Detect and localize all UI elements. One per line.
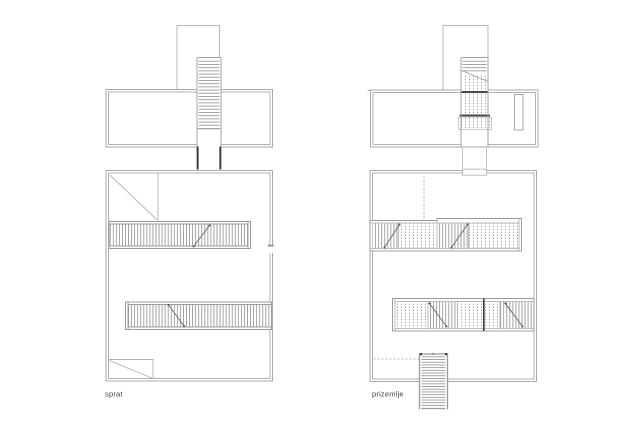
upper-room bbox=[106, 90, 273, 148]
tower-staircase bbox=[197, 58, 221, 170]
main-volume bbox=[106, 171, 275, 382]
top-wall-notch bbox=[462, 169, 487, 176]
connector-walls bbox=[463, 147, 487, 170]
upper-stair-band bbox=[109, 222, 251, 249]
floor-plan-drawing: sprat bbox=[0, 0, 640, 427]
tower-staircase bbox=[459, 58, 492, 171]
upper-stair-band bbox=[370, 219, 522, 252]
upper-room bbox=[368, 90, 539, 147]
stair-landing bbox=[459, 117, 492, 130]
plan-label-prizemlje: prizemlje bbox=[372, 390, 404, 399]
lower-stair-band bbox=[393, 299, 535, 332]
entrance-stair bbox=[420, 353, 448, 410]
wall-end-mark bbox=[268, 245, 274, 247]
lower-stair-band bbox=[126, 302, 272, 330]
plan-sprat: sprat bbox=[105, 26, 275, 399]
right-wall-opening bbox=[268, 247, 275, 254]
plan-label-sprat: sprat bbox=[105, 390, 123, 399]
window-slot bbox=[515, 95, 524, 131]
main-volume bbox=[370, 171, 537, 382]
plan-prizemlje: prizemlje bbox=[368, 26, 539, 410]
floor-plan-sheet: sprat bbox=[0, 0, 640, 427]
